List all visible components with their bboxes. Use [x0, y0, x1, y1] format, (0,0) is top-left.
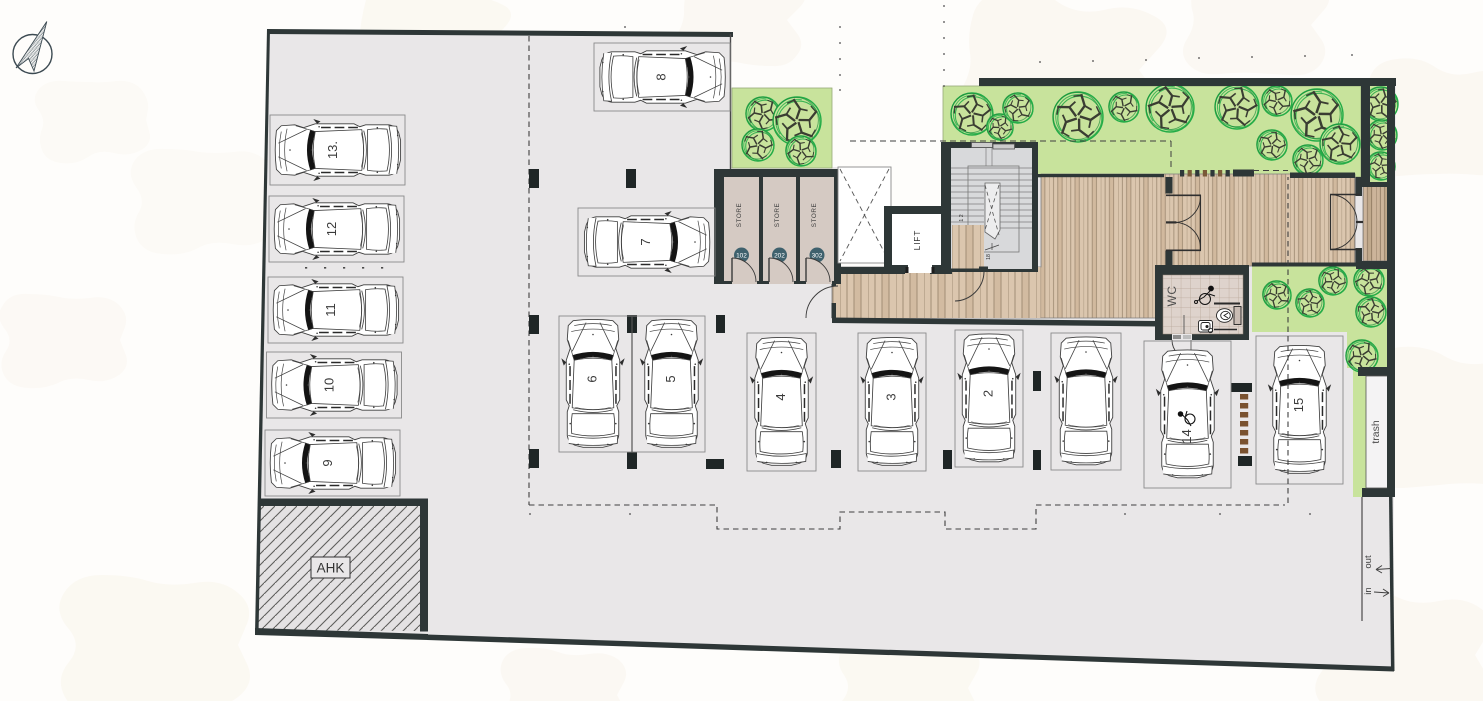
svg-text:out: out — [1363, 555, 1374, 569]
svg-text:302: 302 — [812, 253, 823, 260]
svg-text:4: 4 — [773, 393, 788, 400]
svg-text:15: 15 — [1291, 398, 1306, 412]
svg-text:11: 11 — [323, 303, 338, 317]
svg-text:7: 7 — [638, 238, 653, 245]
svg-text:5: 5 — [663, 375, 678, 382]
svg-text:STORE: STORE — [774, 203, 781, 228]
svg-text:STORE: STORE — [811, 203, 818, 228]
svg-text:2: 2 — [980, 390, 995, 397]
svg-text:in: in — [1363, 587, 1374, 594]
svg-text:6: 6 — [584, 375, 599, 382]
svg-text:STORE: STORE — [736, 203, 743, 228]
svg-text:3: 3 — [883, 393, 898, 400]
svg-text:AHK: AHK — [317, 561, 345, 576]
svg-text:14: 14 — [1179, 429, 1194, 443]
svg-text:18: 18 — [986, 254, 992, 260]
svg-text:13.: 13. — [325, 141, 340, 159]
svg-text:WC: WC — [1165, 286, 1179, 307]
svg-text:12: 12 — [324, 222, 339, 236]
svg-text:8: 8 — [653, 73, 668, 80]
svg-text:LIFT: LIFT — [913, 230, 922, 250]
svg-text:trash: trash — [1370, 420, 1382, 444]
svg-text:10: 10 — [321, 378, 336, 392]
svg-text:9: 9 — [320, 459, 335, 466]
svg-text:1 2: 1 2 — [959, 214, 965, 221]
